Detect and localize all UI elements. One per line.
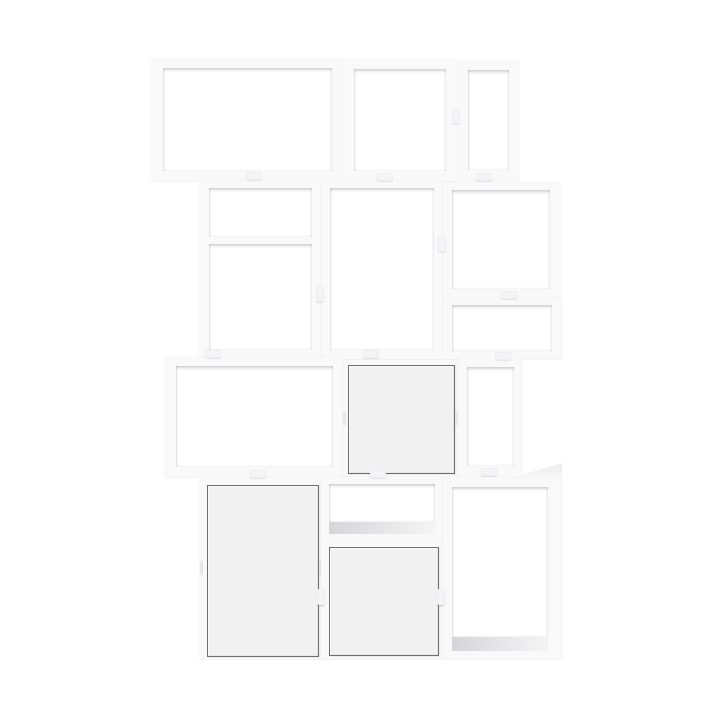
- open-compartment: [467, 367, 514, 466]
- open-compartment: [354, 69, 446, 171]
- shelf-module-second-right-low-open-box: [443, 298, 562, 359]
- shelf-module-third-left-wide-open-box: [165, 357, 343, 477]
- shelving-product-photo: [0, 0, 720, 720]
- connector-clip: [377, 173, 393, 181]
- open-compartment: [163, 68, 332, 171]
- cabinet-door: [207, 485, 319, 657]
- connector-clip: [438, 236, 446, 252]
- connector-clip: [481, 468, 497, 476]
- open-compartment: [330, 188, 434, 350]
- shelf-floor-shadow: [329, 522, 435, 534]
- open-compartment: [209, 244, 312, 350]
- door-hinge: [343, 412, 346, 425]
- shelf-module-top-wide-open-box: [152, 58, 342, 181]
- open-compartment: [176, 366, 333, 467]
- shelf-module-second-right-open-box: [443, 182, 560, 298]
- connector-clip: [363, 350, 379, 358]
- connector-clip: [317, 589, 325, 605]
- shelf-module-bottom-left-door-cabinet: [200, 477, 322, 659]
- connector-clip: [370, 470, 386, 478]
- open-compartment: [209, 188, 312, 237]
- connector-clip: [250, 470, 266, 478]
- shelf-module-bottom-middle-shallow-open-box: [321, 477, 443, 541]
- shelf-floor-shadow: [452, 637, 548, 651]
- open-compartment: [452, 305, 552, 351]
- shelf-module-third-right-narrow-open-box: [458, 357, 522, 478]
- cabinet-door: [329, 547, 439, 656]
- open-compartment: [468, 70, 509, 170]
- shelf-module-bottom-right-tall-open-box: [443, 477, 562, 659]
- shelf-module-top-middle-open-box: [344, 59, 456, 181]
- connector-clip: [316, 286, 324, 302]
- shelf-module-top-narrow-open-box: [458, 60, 519, 180]
- open-compartment: [329, 484, 435, 522]
- open-compartment: [452, 487, 548, 637]
- connector-clip: [205, 350, 221, 358]
- connector-clip: [476, 173, 492, 181]
- door-hinge: [200, 561, 203, 575]
- cabinet-door: [348, 365, 455, 474]
- shelf-module-second-middle-tall-open-box: [321, 180, 443, 359]
- shelf-module-third-middle-door-cabinet: [343, 360, 458, 477]
- open-compartment: [452, 190, 550, 289]
- connector-clip: [495, 352, 511, 360]
- connector-clip: [246, 172, 262, 180]
- shelf-module-bottom-middle-door-cabinet: [321, 541, 443, 659]
- connector-clip: [501, 291, 517, 299]
- connector-clip: [437, 589, 445, 605]
- shelf-module-second-left-divided-box: [200, 180, 321, 359]
- connector-clip: [452, 108, 460, 124]
